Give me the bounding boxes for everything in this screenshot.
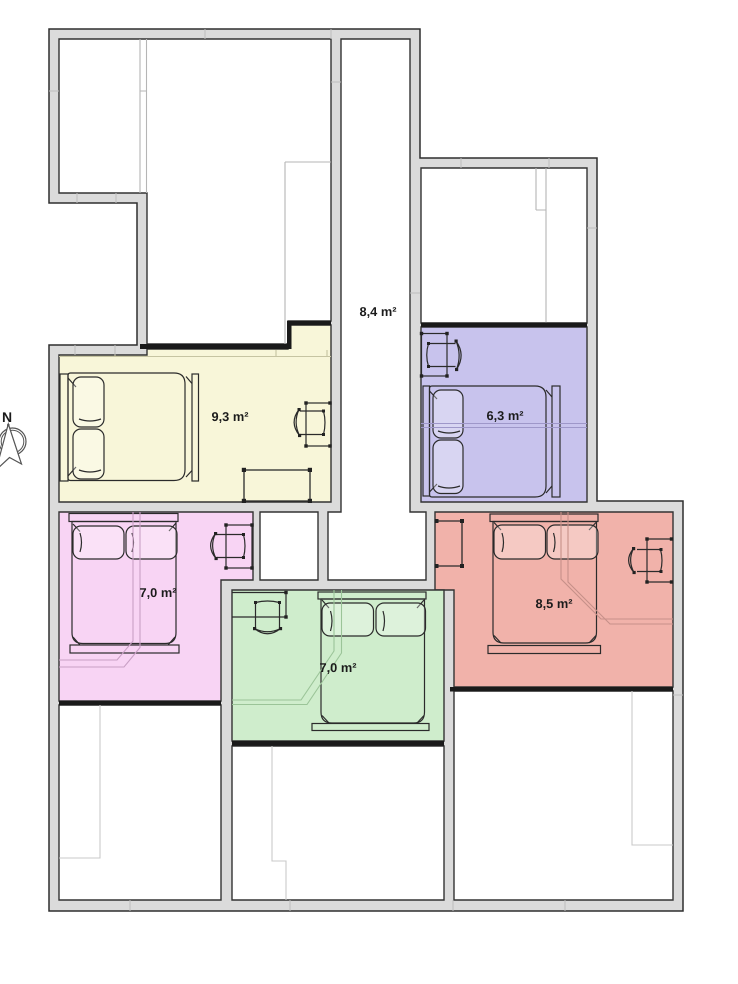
svg-text:8,4 m²: 8,4 m² <box>360 304 397 319</box>
svg-text:8,5 m²: 8,5 m² <box>536 596 573 611</box>
svg-text:7,0 m²: 7,0 m² <box>140 585 177 600</box>
svg-text:6,3 m²: 6,3 m² <box>487 408 524 423</box>
svg-text:9,3 m²: 9,3 m² <box>212 409 249 424</box>
svg-text:7,0 m²: 7,0 m² <box>320 660 357 675</box>
svg-text:N: N <box>2 409 12 425</box>
